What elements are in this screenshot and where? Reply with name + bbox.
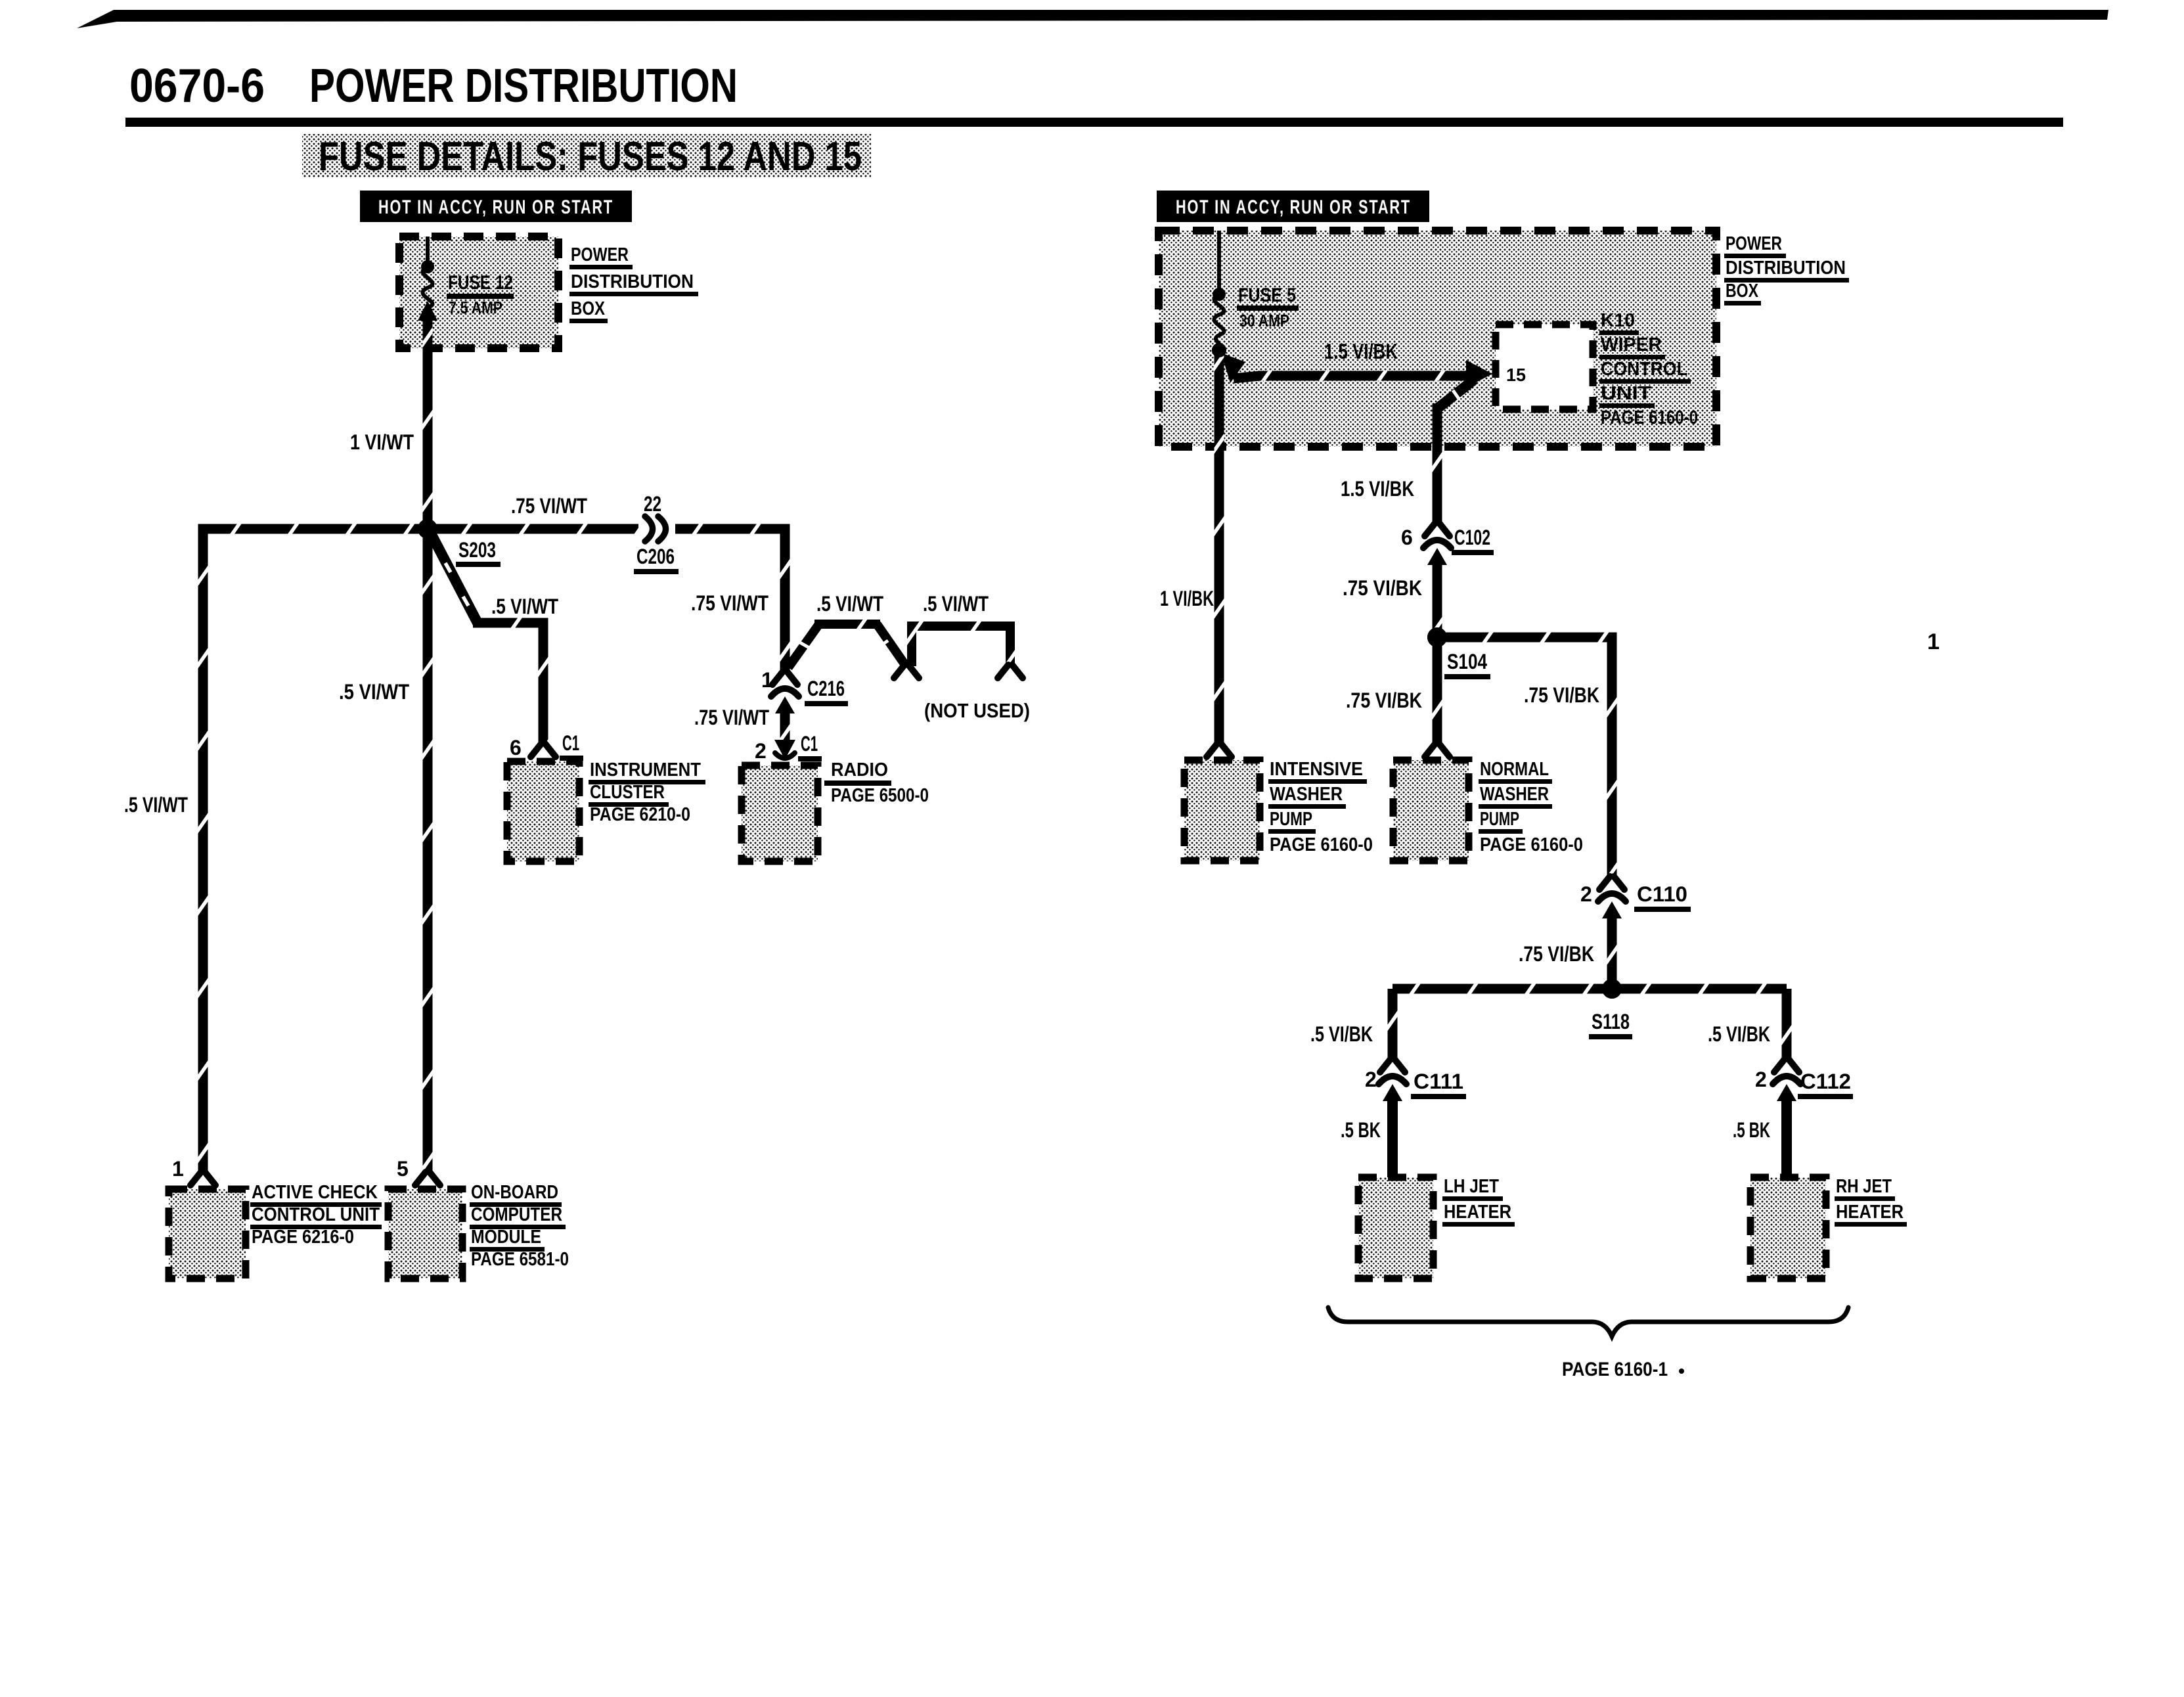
svg-text:.75 VI/WT: .75 VI/WT	[511, 494, 587, 518]
svg-text:C111: C111	[1414, 1070, 1463, 1093]
svg-text:1.5 VI/BK: 1.5 VI/BK	[1341, 477, 1414, 501]
svg-text:PUMP: PUMP	[1480, 809, 1519, 830]
svg-text:5: 5	[397, 1157, 409, 1181]
svg-text:FUSE 12: FUSE 12	[448, 272, 513, 294]
svg-text:1 VI/WT: 1 VI/WT	[350, 430, 414, 454]
svg-text:2: 2	[1580, 882, 1592, 906]
svg-text:NORMAL: NORMAL	[1480, 759, 1549, 780]
svg-text:.5 VI/WT: .5 VI/WT	[339, 680, 409, 704]
svg-text:FUSE 5: FUSE 5	[1238, 284, 1296, 306]
svg-text:S203: S203	[458, 538, 496, 562]
svg-text:INTENSIVE: INTENSIVE	[1270, 759, 1363, 780]
svg-text:C206: C206	[636, 545, 675, 568]
svg-text:PUMP: PUMP	[1270, 809, 1312, 830]
svg-text:COMPUTER: COMPUTER	[471, 1204, 562, 1225]
svg-text:.5 VI/WT: .5 VI/WT	[124, 793, 188, 817]
svg-text:PAGE 6160-0: PAGE 6160-0	[1601, 407, 1698, 428]
svg-text:POWER DISTRIBUTION: POWER DISTRIBUTION	[309, 60, 738, 112]
svg-text:PAGE 6160-0: PAGE 6160-0	[1480, 834, 1583, 855]
svg-text:6: 6	[510, 736, 522, 759]
svg-text:.75 VI/BK: .75 VI/BK	[1524, 683, 1599, 707]
svg-text:S118: S118	[1592, 1010, 1630, 1033]
svg-text:7.5 AMP: 7.5 AMP	[449, 298, 502, 317]
svg-text:PAGE 6216-0: PAGE 6216-0	[252, 1227, 354, 1248]
svg-text:DISTRIBUTION: DISTRIBUTION	[571, 271, 694, 292]
svg-text:(NOT USED): (NOT USED)	[924, 699, 1030, 722]
svg-text:30 AMP: 30 AMP	[1239, 311, 1289, 330]
svg-text:HOT IN ACCY, RUN OR START: HOT IN ACCY, RUN OR START	[378, 196, 613, 218]
svg-text:ACTIVE CHECK: ACTIVE CHECK	[252, 1182, 378, 1203]
svg-text:WASHER: WASHER	[1270, 784, 1343, 805]
svg-text:6: 6	[1401, 526, 1413, 549]
svg-text:HEATER: HEATER	[1836, 1202, 1904, 1223]
svg-text:HOT IN ACCY, RUN OR START: HOT IN ACCY, RUN OR START	[1176, 196, 1411, 218]
svg-text:DISTRIBUTION: DISTRIBUTION	[1726, 258, 1846, 279]
svg-text:PAGE 6160-1: PAGE 6160-1	[1562, 1359, 1668, 1380]
svg-text:15: 15	[1506, 365, 1526, 385]
svg-text:WASHER: WASHER	[1480, 784, 1549, 805]
svg-text:1 VI/BK: 1 VI/BK	[1160, 587, 1214, 610]
svg-text:CONTROL: CONTROL	[1601, 359, 1687, 380]
svg-text:C102: C102	[1454, 526, 1490, 549]
svg-text:.5 VI/WT: .5 VI/WT	[816, 592, 883, 616]
svg-text:.5 VI/BK: .5 VI/BK	[1708, 1022, 1770, 1046]
svg-text:RADIO: RADIO	[831, 759, 888, 781]
svg-text:C216: C216	[807, 677, 845, 700]
svg-text:C110: C110	[1637, 882, 1687, 906]
svg-text:.75 VI/BK: .75 VI/BK	[1346, 689, 1422, 712]
svg-text:UNIT: UNIT	[1601, 383, 1651, 404]
svg-text:S104: S104	[1447, 650, 1487, 673]
svg-text:PAGE 6581-0: PAGE 6581-0	[471, 1249, 569, 1270]
svg-text:FUSE DETAILS: FUSES 12 AND 15: FUSE DETAILS: FUSES 12 AND 15	[319, 134, 862, 179]
svg-text:HEATER: HEATER	[1444, 1202, 1511, 1223]
svg-text:2: 2	[1365, 1068, 1377, 1091]
svg-text:.75 VI/BK: .75 VI/BK	[1343, 576, 1422, 600]
svg-text:WIPER: WIPER	[1601, 334, 1662, 355]
svg-text:BOX: BOX	[571, 298, 606, 319]
svg-text:.75 VI/WT: .75 VI/WT	[694, 706, 769, 729]
svg-text:22: 22	[644, 492, 661, 516]
svg-text:RH JET: RH JET	[1836, 1176, 1892, 1197]
svg-text:0670-6: 0670-6	[129, 60, 265, 112]
svg-text:INSTRUMENT: INSTRUMENT	[590, 759, 701, 781]
svg-text:POWER: POWER	[1726, 233, 1782, 254]
svg-text:C112: C112	[1800, 1070, 1851, 1093]
svg-text:CONTROL UNIT: CONTROL UNIT	[252, 1204, 380, 1225]
svg-text:PAGE 6160-0: PAGE 6160-0	[1270, 834, 1373, 855]
svg-text:.5 BK: .5 BK	[1341, 1118, 1381, 1142]
svg-text:.5 VI/WT: .5 VI/WT	[923, 592, 989, 616]
svg-text:PAGE 6210-0: PAGE 6210-0	[590, 804, 690, 825]
svg-text:2: 2	[755, 739, 767, 763]
svg-text:PAGE 6500-0: PAGE 6500-0	[831, 785, 929, 806]
svg-text:BOX: BOX	[1726, 281, 1759, 302]
svg-text:.5 VI/BK: .5 VI/BK	[1310, 1022, 1373, 1046]
svg-text:LH JET: LH JET	[1444, 1176, 1499, 1197]
svg-text:1: 1	[761, 668, 773, 692]
svg-text:.75 VI/BK: .75 VI/BK	[1519, 942, 1594, 966]
svg-text:ON-BOARD: ON-BOARD	[471, 1182, 558, 1203]
svg-text:1: 1	[1927, 629, 1940, 654]
svg-text:MODULE: MODULE	[471, 1227, 541, 1248]
svg-text:.75 VI/WT: .75 VI/WT	[691, 591, 769, 615]
svg-text:CLUSTER: CLUSTER	[590, 782, 665, 803]
svg-text:C1: C1	[801, 732, 818, 756]
svg-text:1.5 VI/BK: 1.5 VI/BK	[1324, 340, 1398, 363]
svg-text:.5 BK: .5 BK	[1733, 1118, 1770, 1142]
svg-text:POWER: POWER	[571, 244, 629, 265]
svg-text:2: 2	[1755, 1068, 1767, 1091]
svg-text:C1: C1	[562, 731, 579, 755]
svg-text:K10: K10	[1601, 310, 1635, 331]
svg-text:1: 1	[172, 1157, 184, 1181]
svg-text:.5 VI/WT: .5 VI/WT	[491, 595, 558, 618]
